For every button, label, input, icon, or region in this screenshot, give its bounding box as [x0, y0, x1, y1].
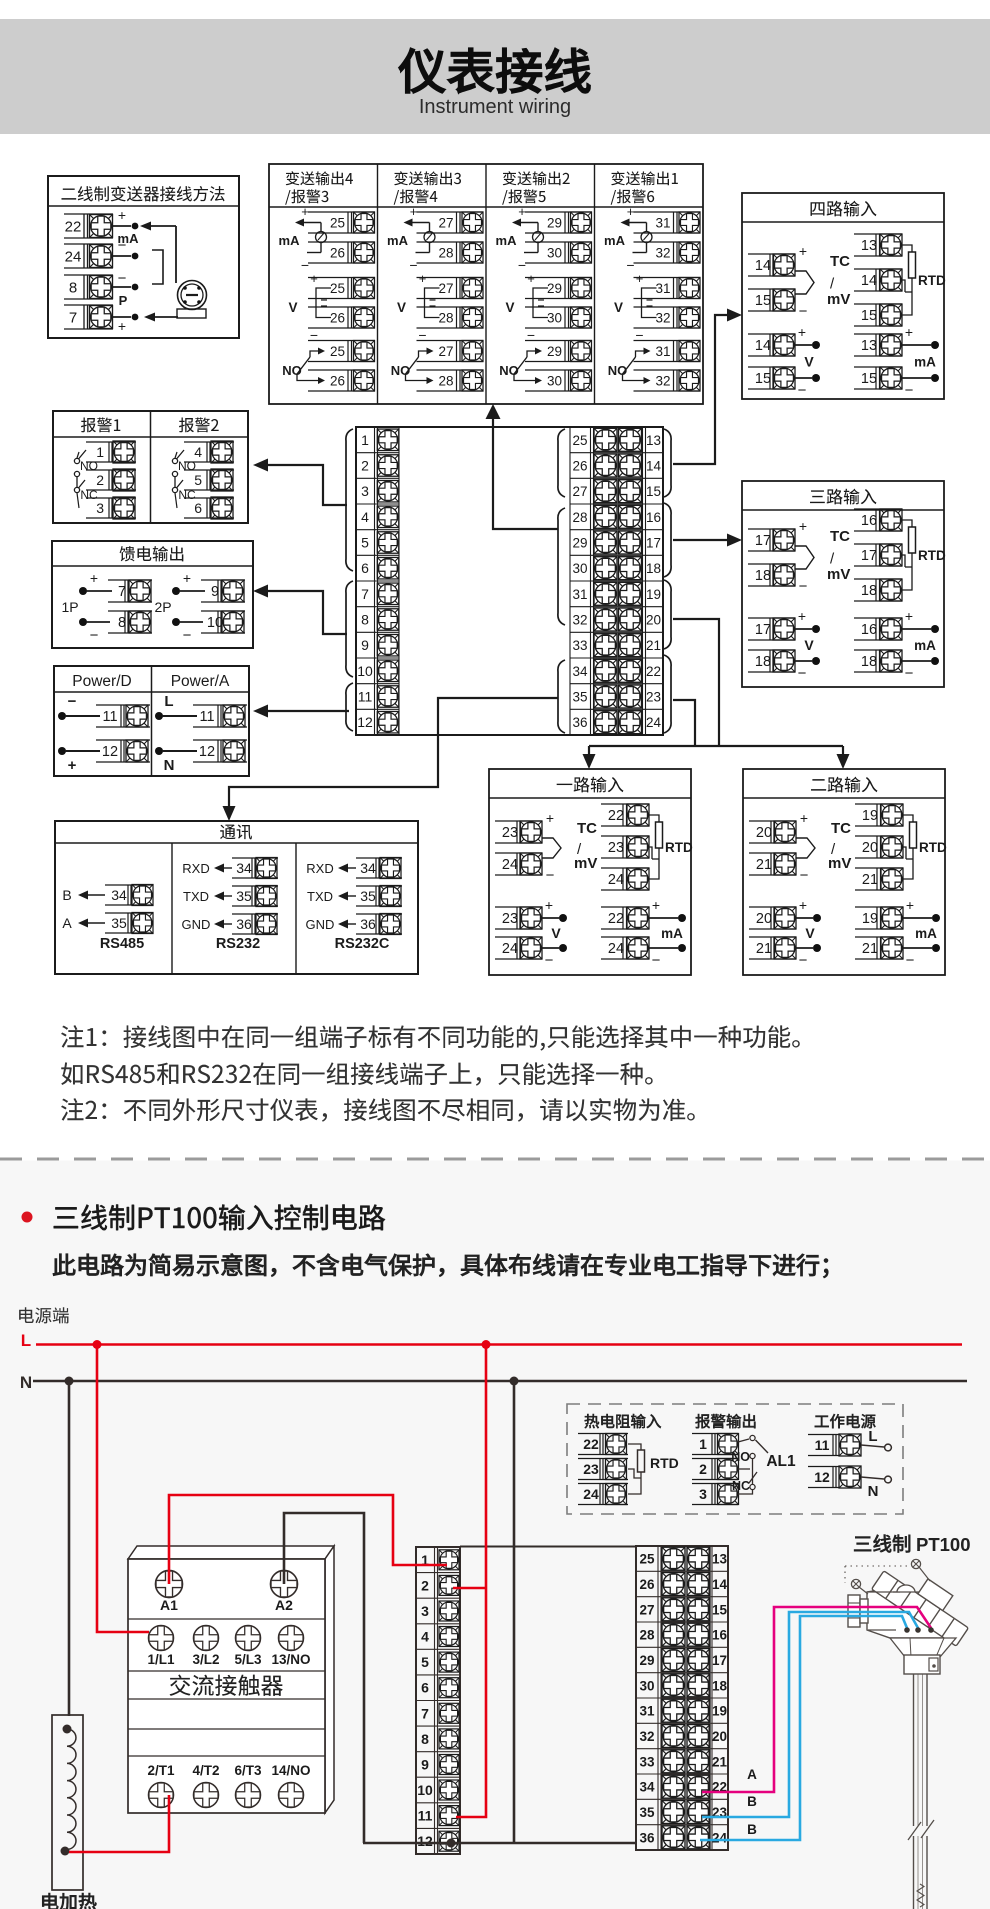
svg-text:N: N	[20, 1373, 32, 1392]
svg-text:L: L	[164, 693, 173, 710]
svg-text:2: 2	[361, 458, 369, 474]
svg-text:+: +	[627, 204, 635, 219]
svg-text:27: 27	[438, 216, 453, 231]
svg-text:mV: mV	[827, 291, 850, 308]
svg-text:17: 17	[755, 533, 771, 549]
svg-text:V: V	[288, 300, 297, 315]
svg-text:35: 35	[639, 1805, 655, 1820]
svg-text:V: V	[505, 300, 514, 315]
svg-text:23: 23	[502, 825, 518, 841]
svg-text:27: 27	[438, 344, 453, 359]
svg-text:35: 35	[111, 915, 127, 931]
svg-text:−: −	[799, 303, 808, 320]
svg-text:31: 31	[639, 1704, 655, 1719]
svg-text:+: +	[183, 570, 191, 586]
svg-text:−: −	[301, 257, 309, 273]
svg-text:B: B	[747, 1794, 757, 1809]
svg-text:14: 14	[712, 1577, 728, 1592]
svg-text:20: 20	[862, 840, 878, 856]
svg-text:18: 18	[755, 568, 771, 584]
svg-text:34: 34	[236, 860, 252, 876]
svg-text:+: +	[410, 204, 418, 219]
svg-text:9: 9	[361, 637, 369, 653]
svg-text:35: 35	[236, 888, 252, 904]
svg-text:24: 24	[502, 941, 518, 957]
svg-text:28: 28	[438, 311, 453, 326]
svg-text:RXD: RXD	[182, 861, 209, 876]
svg-text:11: 11	[418, 1808, 433, 1824]
svg-text:AL1: AL1	[766, 1453, 796, 1470]
svg-text:22: 22	[608, 808, 624, 824]
svg-text:13: 13	[646, 433, 661, 448]
svg-text:29: 29	[547, 216, 562, 231]
svg-text:26: 26	[639, 1577, 655, 1592]
svg-text:13: 13	[861, 338, 877, 354]
svg-text:11: 11	[358, 689, 373, 705]
svg-text:NO: NO	[178, 459, 196, 473]
svg-text:V: V	[614, 300, 623, 315]
svg-text:−: −	[183, 627, 192, 644]
svg-text:PT100: PT100	[916, 1534, 971, 1555]
svg-text:16: 16	[712, 1628, 728, 1643]
svg-text:3: 3	[361, 483, 369, 499]
svg-text:TC: TC	[830, 528, 850, 545]
svg-text:1: 1	[361, 432, 369, 448]
svg-text:17: 17	[755, 622, 771, 638]
svg-text:+: +	[518, 204, 526, 219]
svg-text:13: 13	[712, 1552, 728, 1567]
svg-text:TC: TC	[831, 820, 851, 837]
svg-text:26: 26	[330, 246, 345, 261]
svg-text:24: 24	[608, 872, 624, 888]
svg-text:24: 24	[712, 1830, 728, 1845]
svg-text:Power/A: Power/A	[171, 673, 230, 690]
svg-text:19: 19	[646, 587, 661, 602]
svg-text:V: V	[804, 354, 814, 370]
svg-text:4: 4	[194, 444, 202, 460]
svg-text:−: −	[800, 867, 809, 884]
svg-text:RTD: RTD	[918, 548, 946, 563]
svg-text:36: 36	[639, 1830, 655, 1845]
svg-text:+: +	[68, 757, 77, 774]
svg-text:23: 23	[608, 840, 624, 856]
svg-text:−: −	[546, 867, 555, 884]
svg-text:N: N	[164, 757, 175, 774]
svg-text:26: 26	[330, 311, 345, 326]
svg-text:7: 7	[421, 1705, 429, 1721]
svg-text:25: 25	[330, 344, 345, 359]
svg-text:24: 24	[608, 941, 624, 957]
svg-text:35: 35	[360, 888, 376, 904]
svg-text:2/T1: 2/T1	[147, 1763, 175, 1778]
svg-text:36: 36	[360, 916, 376, 932]
svg-text:+: +	[800, 810, 808, 826]
svg-text:5: 5	[361, 535, 369, 551]
svg-text:27: 27	[572, 484, 587, 499]
svg-text:18: 18	[861, 583, 877, 599]
svg-text:34: 34	[111, 887, 127, 903]
svg-text:TXD: TXD	[307, 889, 333, 904]
svg-text:NC: NC	[178, 488, 196, 502]
svg-text:21: 21	[862, 941, 878, 957]
svg-text:22: 22	[583, 1436, 599, 1452]
svg-text:16: 16	[646, 510, 661, 525]
svg-text:V: V	[805, 925, 815, 941]
svg-text:12: 12	[357, 714, 373, 730]
svg-text:V: V	[804, 637, 814, 653]
svg-text:3: 3	[421, 1603, 429, 1619]
svg-text:19: 19	[712, 1704, 727, 1719]
svg-text:mA: mA	[279, 233, 301, 248]
svg-text:5/L3: 5/L3	[234, 1652, 262, 1667]
svg-text:21: 21	[712, 1754, 728, 1769]
svg-text:−: −	[90, 627, 99, 644]
svg-text:14: 14	[646, 459, 662, 474]
svg-text:14: 14	[861, 273, 877, 289]
svg-text:25: 25	[639, 1552, 655, 1567]
svg-text:Instrument wiring: Instrument wiring	[419, 96, 571, 118]
svg-text:35: 35	[572, 690, 587, 705]
svg-text:+: +	[906, 897, 914, 913]
svg-text:21: 21	[756, 857, 772, 873]
svg-text:mA: mA	[496, 233, 518, 248]
svg-text:26: 26	[572, 459, 587, 474]
svg-text:24: 24	[65, 249, 82, 266]
svg-text:31: 31	[655, 281, 670, 296]
svg-text:6/T3: 6/T3	[234, 1763, 262, 1778]
svg-text:18: 18	[712, 1678, 728, 1693]
svg-text:NC: NC	[732, 1479, 750, 1493]
svg-text:25: 25	[330, 281, 345, 296]
svg-text:24: 24	[502, 857, 518, 873]
svg-text:17: 17	[712, 1653, 727, 1668]
svg-text:RS485: RS485	[100, 936, 144, 952]
svg-text:2: 2	[699, 1461, 707, 1477]
svg-text:mA: mA	[661, 926, 683, 941]
svg-text:−: −	[799, 578, 808, 595]
svg-text:+: +	[636, 271, 644, 286]
svg-text:NC: NC	[80, 488, 98, 502]
svg-text:+: +	[652, 897, 660, 913]
svg-text:B: B	[62, 887, 71, 903]
svg-text:+: +	[905, 324, 913, 340]
svg-text:−: −	[798, 665, 807, 682]
svg-text:13: 13	[861, 238, 877, 254]
svg-text:mA: mA	[914, 355, 936, 370]
svg-text:30: 30	[572, 561, 587, 576]
svg-text:14: 14	[755, 338, 771, 354]
svg-text:7: 7	[361, 586, 369, 602]
svg-text:B: B	[747, 1822, 757, 1837]
svg-text:A2: A2	[275, 1597, 293, 1613]
svg-text:+: +	[799, 243, 807, 259]
svg-text:16: 16	[861, 513, 877, 529]
svg-text:1P: 1P	[61, 599, 78, 615]
svg-text:10: 10	[357, 663, 373, 679]
svg-text:NO: NO	[80, 459, 98, 473]
svg-text:A1: A1	[160, 1597, 178, 1613]
svg-text:+: +	[90, 570, 98, 586]
svg-text:15: 15	[755, 293, 771, 309]
svg-text:+: +	[118, 318, 126, 334]
svg-text:15: 15	[861, 371, 877, 387]
svg-text:15: 15	[712, 1602, 728, 1617]
svg-text:TC: TC	[830, 253, 850, 270]
svg-text:mA: mA	[915, 926, 937, 941]
svg-text:31: 31	[655, 216, 670, 231]
svg-text:+: +	[798, 608, 806, 624]
svg-text:22: 22	[646, 664, 661, 679]
svg-text:TC: TC	[577, 820, 597, 837]
svg-text:−: −	[906, 952, 915, 969]
svg-text:A: A	[62, 915, 72, 931]
svg-text:mA: mA	[387, 233, 409, 248]
svg-text:A: A	[747, 1767, 757, 1782]
svg-text:18: 18	[861, 654, 877, 670]
svg-text:28: 28	[438, 374, 453, 389]
svg-text:13/NO: 13/NO	[271, 1652, 310, 1667]
svg-text:8: 8	[421, 1731, 429, 1747]
svg-text:+: +	[799, 897, 807, 913]
svg-text:29: 29	[639, 1653, 654, 1668]
svg-text:29: 29	[547, 344, 562, 359]
svg-text:mV: mV	[574, 855, 597, 872]
svg-text:+: +	[118, 207, 126, 223]
svg-text:−: −	[118, 237, 127, 254]
svg-text:4: 4	[361, 509, 369, 525]
svg-text:18: 18	[646, 561, 661, 576]
svg-text:mV: mV	[827, 566, 850, 583]
svg-text:24: 24	[583, 1486, 599, 1502]
svg-text:7: 7	[69, 310, 77, 327]
svg-text:5: 5	[194, 472, 202, 488]
svg-text:29: 29	[547, 281, 562, 296]
svg-text:28: 28	[572, 510, 587, 525]
svg-text:+: +	[546, 810, 554, 826]
svg-text:21: 21	[862, 872, 878, 888]
svg-text:−: −	[409, 257, 417, 273]
svg-text:33: 33	[639, 1754, 655, 1769]
svg-text:+: +	[905, 608, 913, 624]
svg-text:32: 32	[655, 246, 670, 261]
svg-text:−: −	[68, 693, 77, 710]
svg-text:15: 15	[861, 308, 877, 324]
svg-text:14/NO: 14/NO	[271, 1763, 310, 1778]
svg-text:10: 10	[417, 1782, 433, 1798]
svg-text:GND: GND	[306, 917, 335, 932]
svg-text:TXD: TXD	[183, 889, 209, 904]
svg-text:N: N	[868, 1483, 879, 1500]
svg-text:12: 12	[417, 1833, 433, 1849]
svg-text:mA: mA	[604, 233, 626, 248]
svg-text:3: 3	[699, 1486, 707, 1502]
svg-text:+: +	[419, 271, 427, 286]
svg-text:+: +	[799, 518, 807, 534]
svg-text:RTD: RTD	[918, 273, 946, 288]
svg-text:28: 28	[438, 246, 453, 261]
svg-text:26: 26	[330, 374, 345, 389]
svg-text:12: 12	[102, 744, 118, 760]
svg-text:16: 16	[861, 622, 877, 638]
svg-text:3: 3	[96, 500, 104, 516]
svg-text:1: 1	[699, 1436, 707, 1452]
svg-text:6: 6	[194, 500, 202, 516]
svg-text:2: 2	[96, 472, 104, 488]
svg-text:Power/D: Power/D	[72, 673, 131, 690]
svg-text:17: 17	[861, 548, 877, 564]
svg-text:L: L	[21, 1331, 31, 1350]
svg-text:−: −	[545, 952, 554, 969]
svg-text:25: 25	[330, 216, 345, 231]
svg-text:2P: 2P	[154, 599, 171, 615]
svg-text:27: 27	[438, 281, 453, 296]
svg-text:28: 28	[639, 1628, 655, 1643]
svg-text:21: 21	[646, 638, 661, 653]
svg-text:22: 22	[65, 219, 82, 236]
svg-text:+: +	[527, 271, 535, 286]
svg-text:32: 32	[655, 311, 670, 326]
svg-text:29: 29	[572, 536, 587, 551]
svg-text:4: 4	[421, 1629, 429, 1645]
svg-text:20: 20	[712, 1729, 727, 1744]
svg-text:18: 18	[755, 654, 771, 670]
svg-text:−: −	[626, 257, 634, 273]
svg-text:RTD: RTD	[919, 840, 947, 855]
svg-text:17: 17	[646, 536, 661, 551]
svg-text:RXD: RXD	[306, 861, 333, 876]
svg-text:22: 22	[608, 911, 624, 927]
svg-text:P: P	[119, 293, 128, 308]
svg-text:−: −	[798, 382, 807, 399]
svg-text:15: 15	[646, 484, 661, 499]
svg-text:−: −	[905, 665, 914, 682]
svg-text:8: 8	[69, 280, 77, 297]
svg-text:32: 32	[655, 374, 670, 389]
svg-text:34: 34	[639, 1780, 655, 1795]
svg-text:34: 34	[360, 860, 376, 876]
svg-text:30: 30	[639, 1678, 654, 1693]
svg-text:4/T2: 4/T2	[192, 1763, 219, 1778]
svg-text:33: 33	[572, 638, 587, 653]
svg-text:V: V	[397, 300, 406, 315]
svg-text:RTD: RTD	[650, 1455, 679, 1471]
svg-text:19: 19	[862, 808, 878, 824]
svg-text:12: 12	[814, 1469, 830, 1485]
svg-text:24: 24	[646, 715, 662, 730]
svg-text:mV: mV	[828, 855, 851, 872]
svg-text:36: 36	[236, 916, 252, 932]
svg-text:+: +	[310, 271, 318, 286]
svg-text:20: 20	[756, 825, 772, 841]
svg-text:32: 32	[639, 1729, 654, 1744]
svg-text:21: 21	[756, 941, 772, 957]
svg-text:11: 11	[102, 709, 117, 725]
svg-text:−: −	[118, 270, 127, 287]
svg-text:9: 9	[421, 1757, 429, 1773]
svg-text:V: V	[551, 925, 561, 941]
svg-text:11: 11	[815, 1437, 830, 1453]
svg-text:6: 6	[421, 1680, 429, 1696]
svg-text:15: 15	[755, 371, 771, 387]
svg-text:30: 30	[547, 246, 562, 261]
svg-text:12: 12	[199, 744, 215, 760]
svg-text:1: 1	[96, 444, 104, 460]
svg-text:23: 23	[502, 911, 518, 927]
svg-text:mA: mA	[914, 638, 936, 653]
svg-text:8: 8	[361, 612, 369, 628]
svg-text:3/L2: 3/L2	[192, 1652, 219, 1667]
svg-text:+: +	[545, 897, 553, 913]
svg-text:23: 23	[646, 690, 661, 705]
svg-text:−: −	[518, 257, 526, 273]
svg-text:36: 36	[572, 715, 587, 730]
svg-text:+: +	[301, 204, 309, 219]
svg-text:27: 27	[639, 1602, 654, 1617]
svg-text:11: 11	[199, 709, 214, 725]
svg-text:19: 19	[862, 911, 878, 927]
svg-text:20: 20	[646, 613, 661, 628]
svg-text:31: 31	[655, 344, 670, 359]
svg-text:2: 2	[421, 1577, 429, 1593]
svg-text:GND: GND	[182, 917, 211, 932]
svg-text:−: −	[652, 952, 661, 969]
svg-text:5: 5	[421, 1654, 429, 1670]
svg-text:RS232C: RS232C	[335, 936, 390, 952]
svg-text:1/L1: 1/L1	[147, 1652, 175, 1667]
svg-text:14: 14	[755, 258, 771, 274]
svg-text:−: −	[905, 382, 914, 399]
svg-text:+: +	[798, 324, 806, 340]
svg-text:30: 30	[547, 311, 562, 326]
svg-text:31: 31	[572, 587, 587, 602]
svg-text:25: 25	[572, 433, 587, 448]
svg-text:23: 23	[583, 1461, 599, 1477]
svg-text:20: 20	[756, 911, 772, 927]
svg-text:30: 30	[547, 374, 562, 389]
svg-text:−: −	[799, 952, 808, 969]
svg-text:RTD: RTD	[665, 840, 693, 855]
svg-text:RS232: RS232	[216, 936, 260, 952]
svg-text:6: 6	[361, 560, 369, 576]
svg-text:34: 34	[572, 664, 588, 679]
svg-text:32: 32	[572, 613, 587, 628]
svg-text:NO: NO	[731, 1450, 750, 1464]
svg-text:L: L	[868, 1428, 877, 1445]
